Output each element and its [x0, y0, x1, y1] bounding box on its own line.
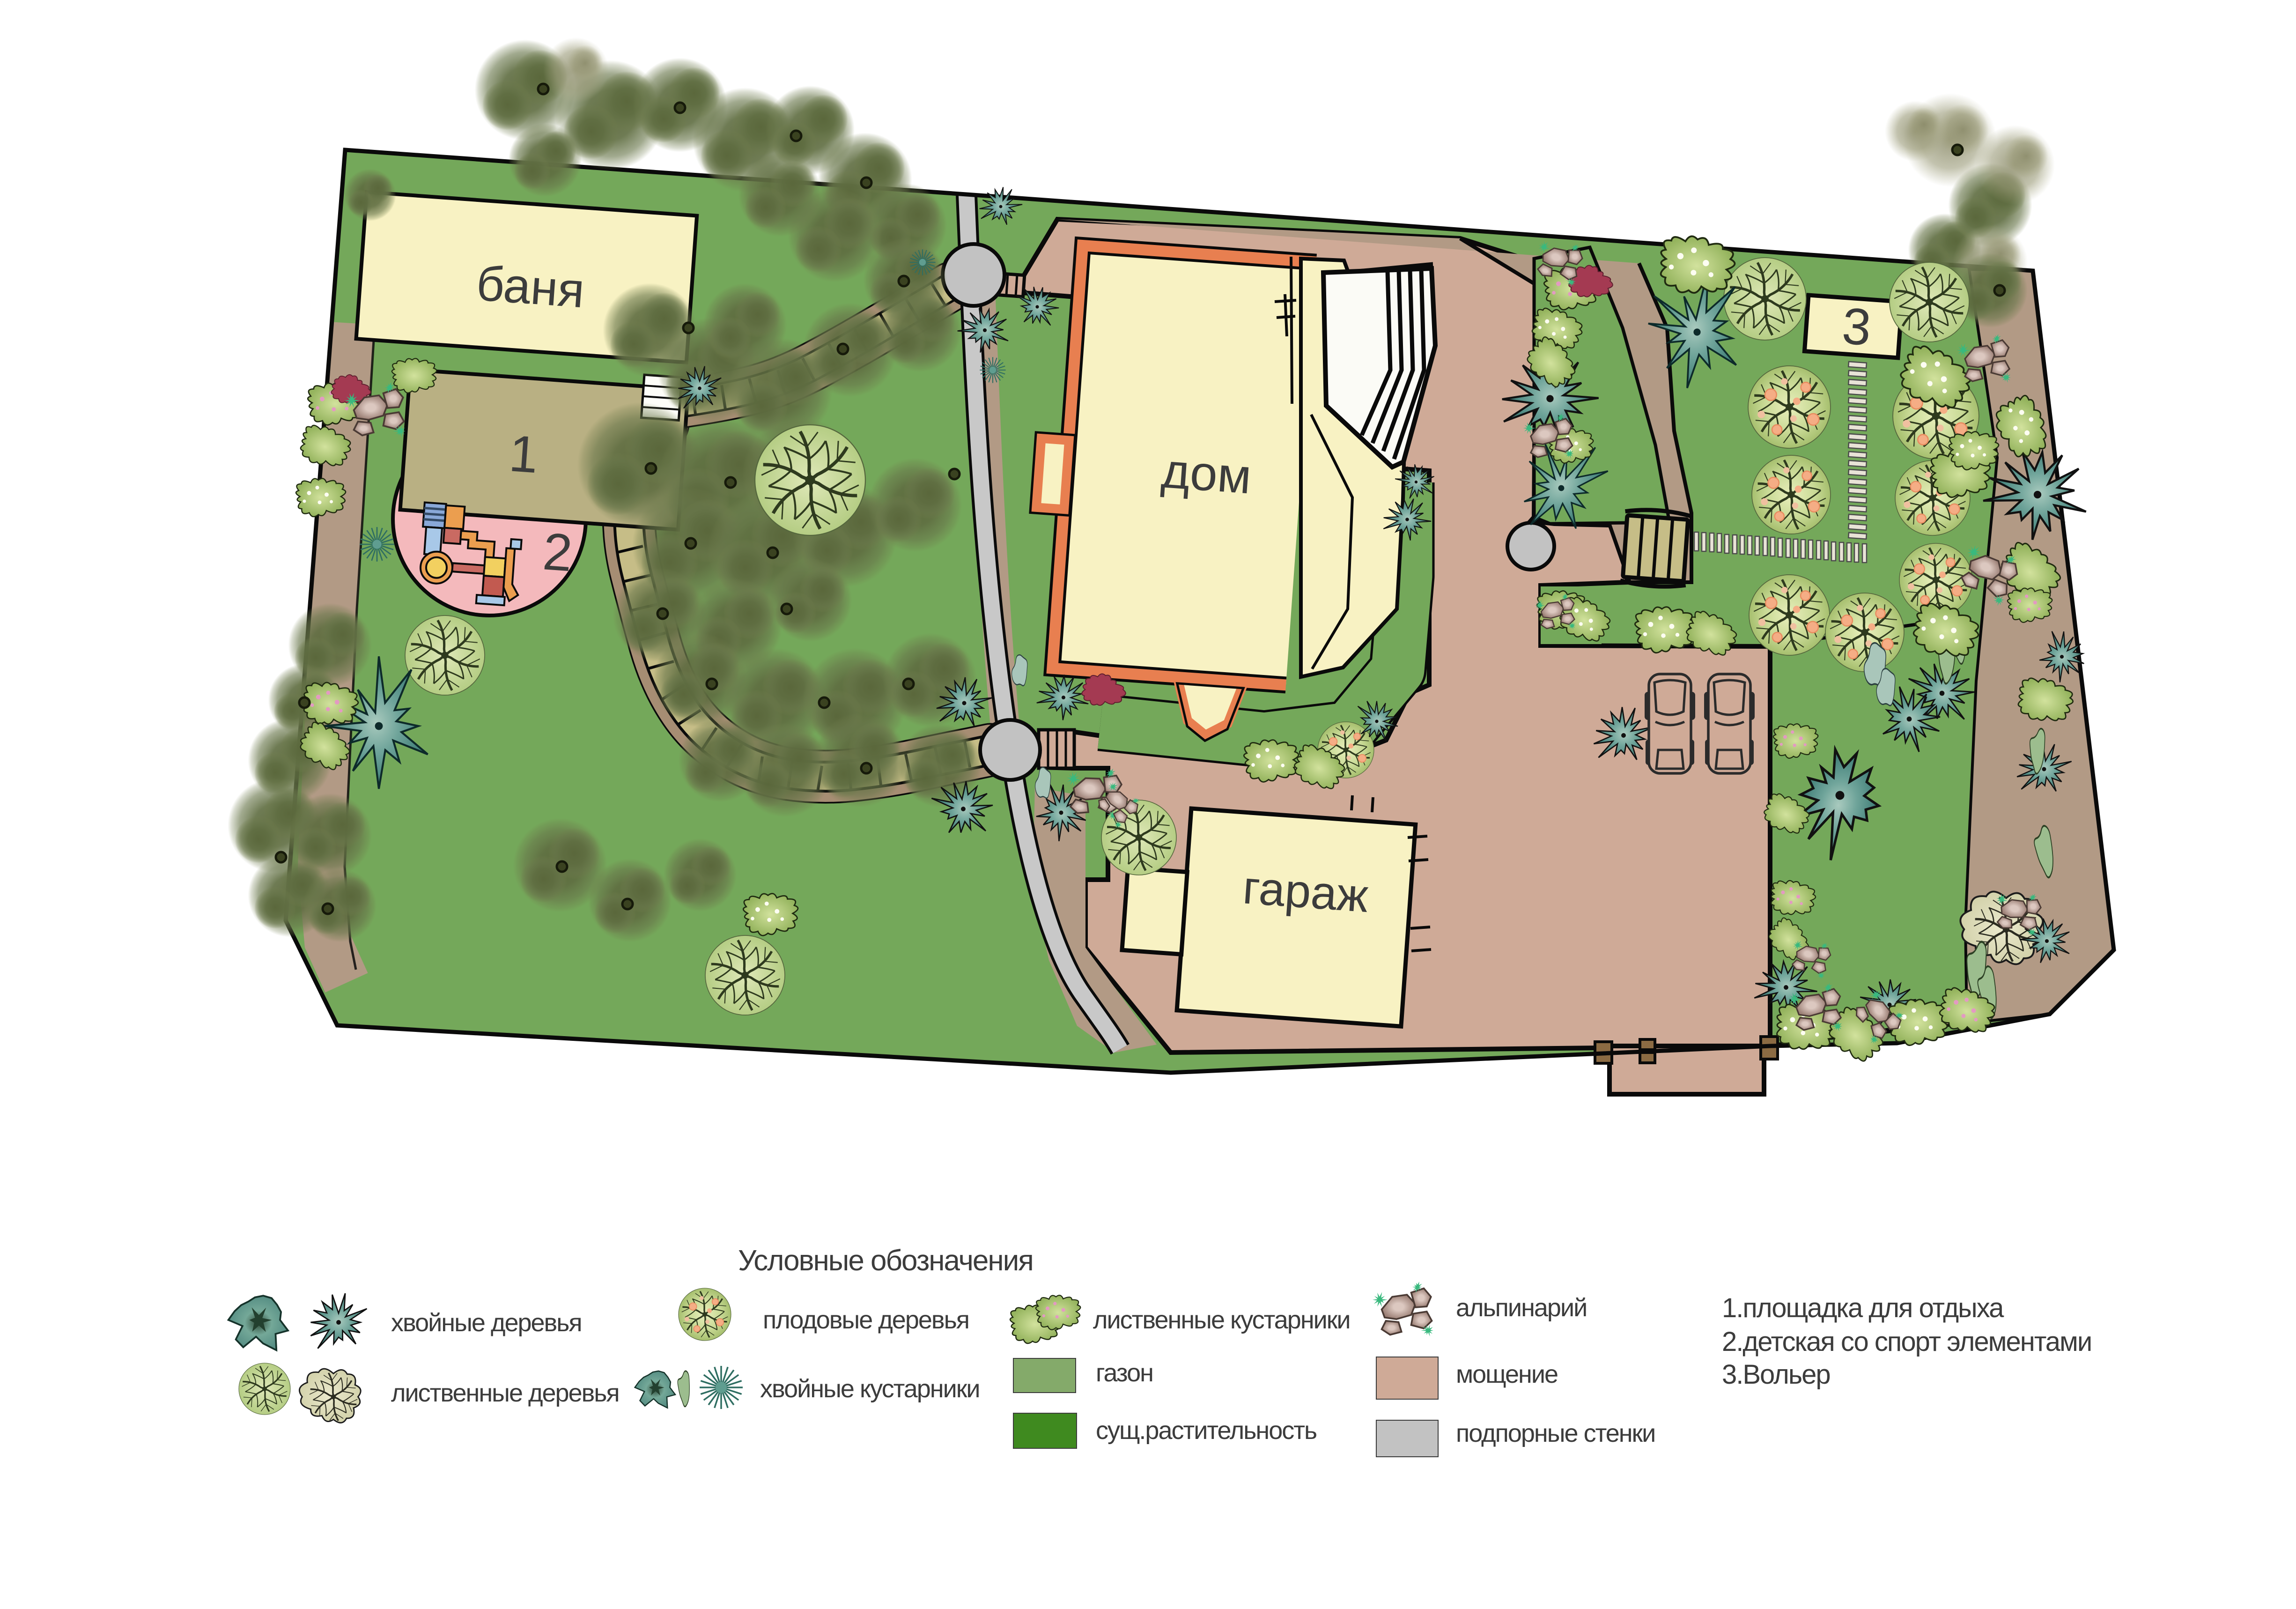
svg-text:баня: баня — [474, 256, 586, 318]
svg-text:мощение: мощение — [1456, 1360, 1558, 1388]
svg-text:хвойные кустарники: хвойные кустарники — [760, 1375, 980, 1403]
svg-text:дом: дом — [1159, 443, 1253, 504]
svg-text:Условные обозначения: Условные обозначения — [738, 1245, 1033, 1277]
svg-text:газон: газон — [1096, 1359, 1153, 1387]
svg-text:альпинарий: альпинарий — [1456, 1294, 1587, 1322]
svg-text:лиственные деревья: лиственные деревья — [391, 1379, 619, 1407]
svg-text:1.площадка для отдыха: 1.площадка для отдыха — [1722, 1293, 2004, 1323]
svg-text:хвойные деревья: хвойные деревья — [391, 1309, 582, 1337]
svg-text:сущ.растительность: сущ.растительность — [1096, 1416, 1316, 1445]
svg-text:подпорные стенки: подпорные стенки — [1456, 1419, 1655, 1447]
svg-text:лиственные кустарники: лиственные кустарники — [1093, 1306, 1350, 1334]
svg-text:2.детская со спорт элементами: 2.детская со спорт элементами — [1722, 1327, 2091, 1357]
svg-text:плодовые деревья: плодовые деревья — [763, 1306, 969, 1334]
svg-text:3.Вольер: 3.Вольер — [1722, 1359, 1830, 1390]
svg-text:гараж: гараж — [1241, 861, 1370, 922]
svg-text:3: 3 — [1840, 297, 1873, 356]
svg-text:2: 2 — [541, 522, 574, 582]
svg-text:1: 1 — [507, 424, 540, 484]
